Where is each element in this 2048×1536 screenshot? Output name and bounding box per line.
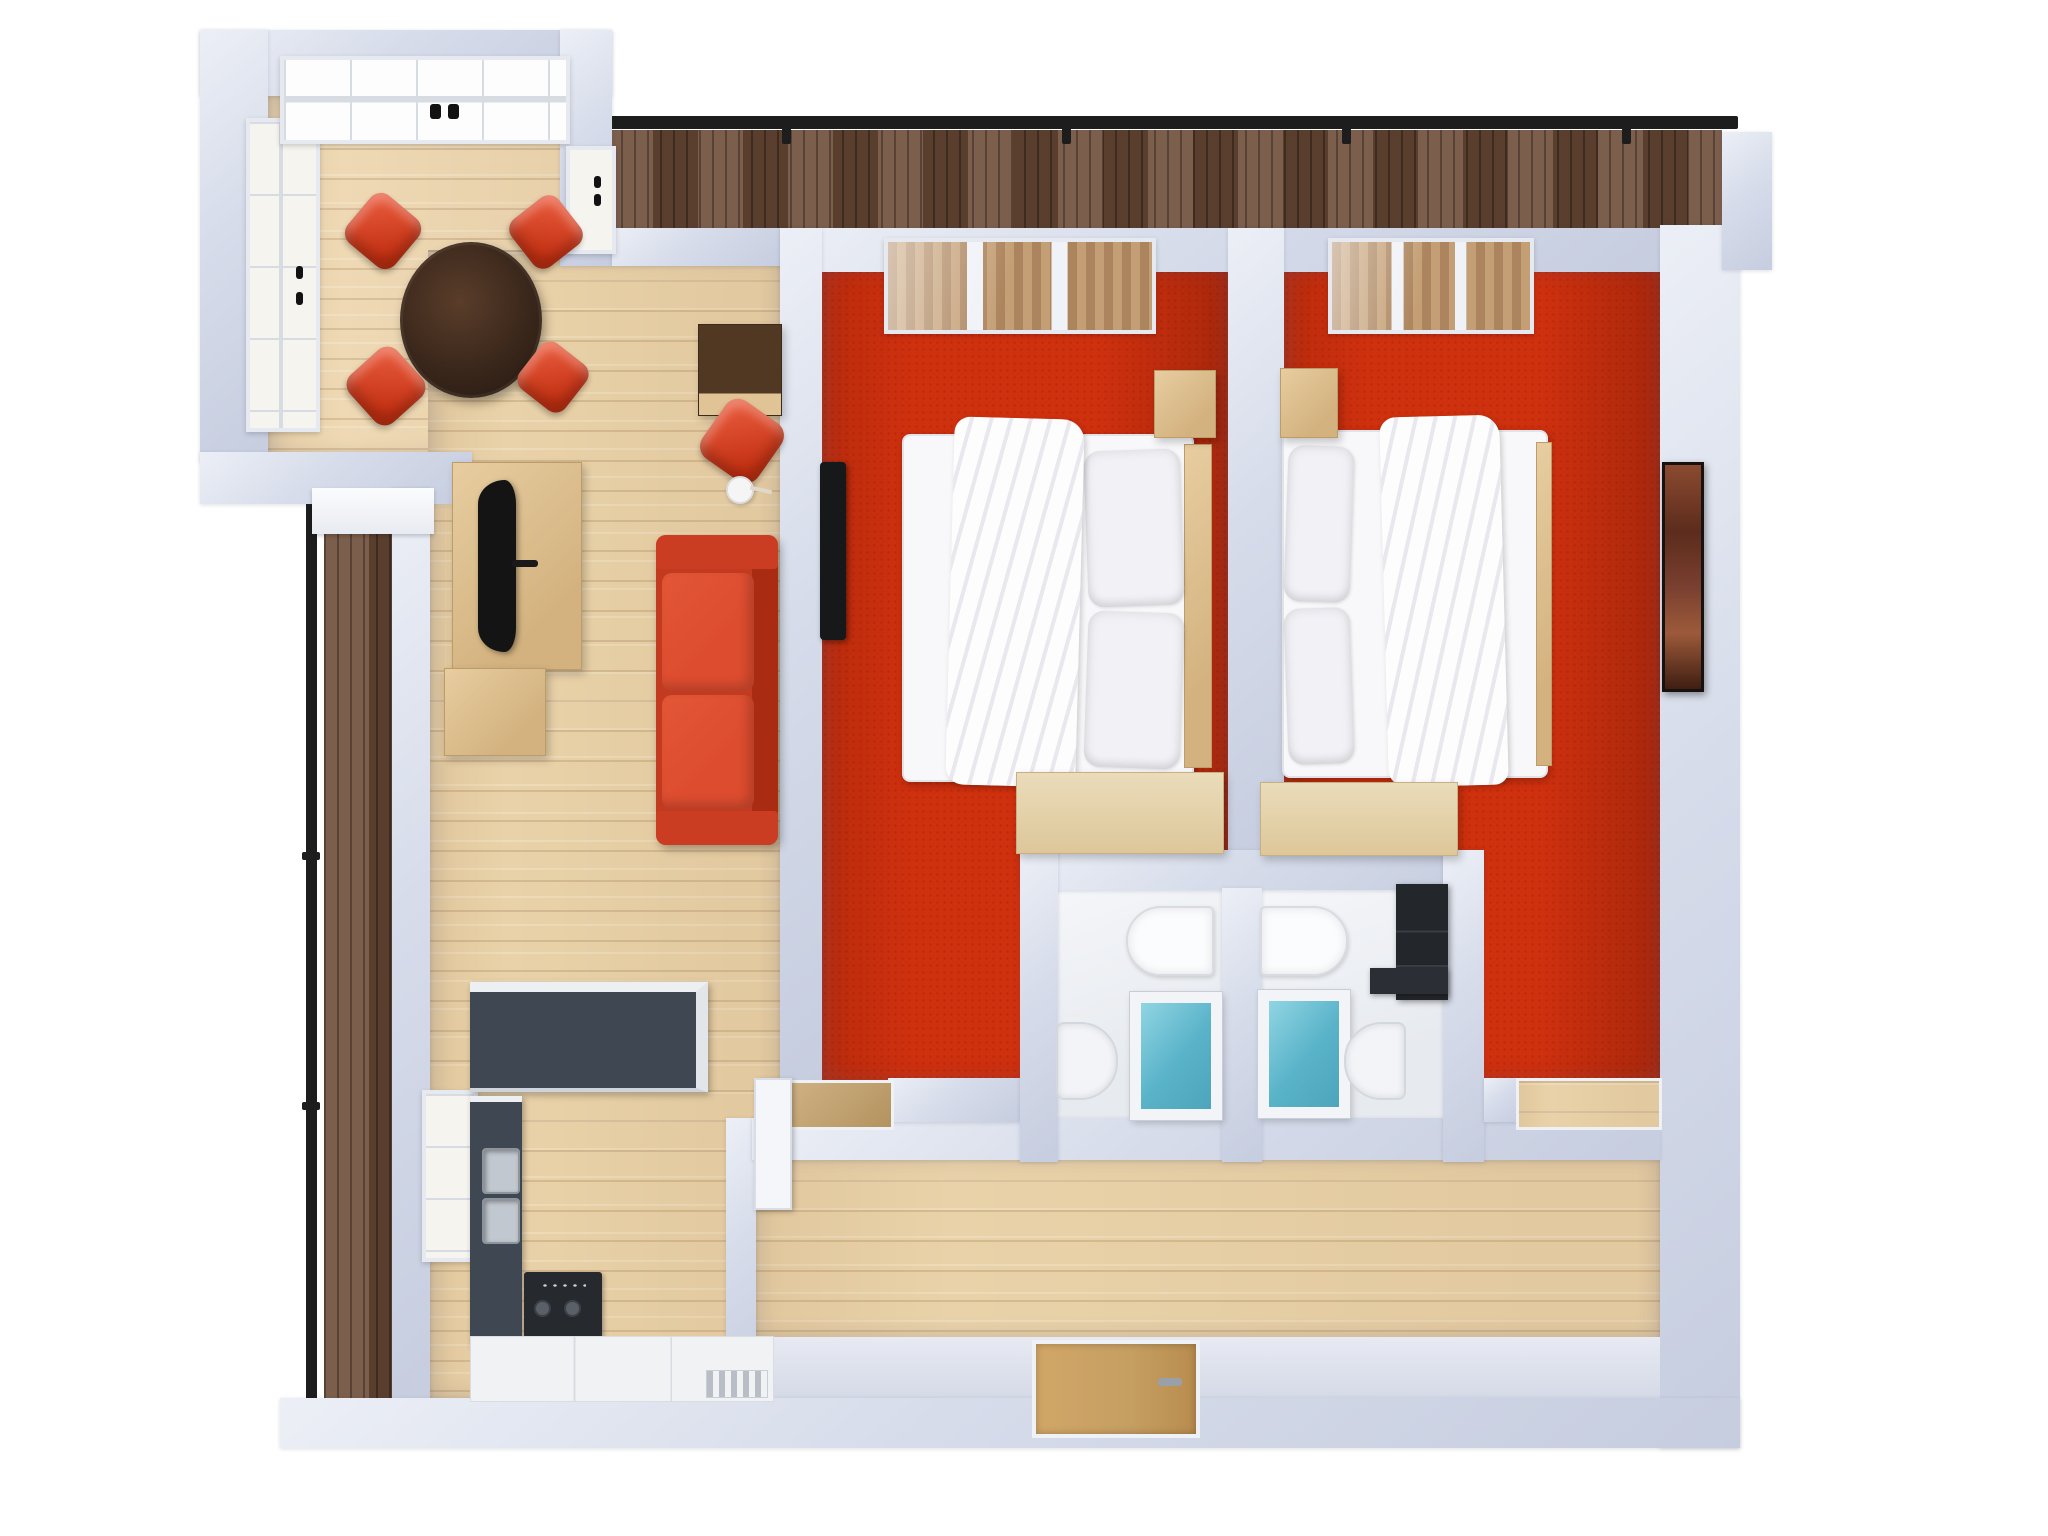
- window-handle-icon: [296, 266, 303, 279]
- bathroom-2-dark-counter: [1370, 968, 1448, 994]
- tv-stand-arm: [512, 560, 538, 567]
- bedroom-1-duvet: [945, 416, 1085, 787]
- bedroom-2-nightstand: [1280, 368, 1338, 438]
- sofa-cushion: [662, 573, 754, 691]
- railing-post: [302, 852, 320, 860]
- bedroom-1-headboard: [1184, 444, 1212, 768]
- wall-bathroom-divider: [1222, 888, 1262, 1162]
- floor-lamp: [726, 476, 754, 504]
- bedroom-2-foot-rail: [1536, 442, 1552, 766]
- wall-bottom: [280, 1398, 1740, 1448]
- wall-bedroom-1-bottom: [888, 1078, 1020, 1122]
- wall-living-top: [612, 228, 782, 266]
- bedroom-2-door-mat: [1516, 1078, 1662, 1130]
- bedroom-2-pillow: [1283, 445, 1354, 603]
- dining-left-window: [246, 118, 320, 432]
- bedroom-2-desk: [1260, 782, 1458, 856]
- door-handle-icon: [594, 194, 601, 206]
- bedroom-1-pillow: [1083, 610, 1184, 769]
- kitchen-cooktop: [524, 1272, 602, 1338]
- bedroom-1-door-mat: [788, 1080, 894, 1130]
- window-handle-icon: [430, 104, 441, 119]
- window-handle-icon: [296, 292, 303, 305]
- bedroom-2-wall-art: [1662, 462, 1704, 692]
- wall-bathroom-left: [1020, 850, 1058, 1162]
- bedroom-1-window: [884, 238, 1156, 334]
- tv-screen: [478, 480, 516, 652]
- entrance-door-handle: [1158, 1378, 1182, 1386]
- railing-post: [1622, 128, 1631, 144]
- sofa-armrest: [656, 811, 778, 845]
- bedroom-1-wall-tv: [820, 462, 846, 640]
- sofa-backrest: [752, 541, 778, 839]
- bedroom-2-duvet: [1379, 414, 1509, 787]
- kitchen-sink: [482, 1148, 520, 1194]
- wall-balcony-left-inner: [392, 488, 430, 1408]
- bathroom-2-bathtub: [1258, 990, 1350, 1118]
- wall-bedroom-1-left: [780, 228, 822, 1080]
- bedroom-1-desk: [1016, 772, 1224, 854]
- hallway-floor: [752, 1150, 1660, 1340]
- bedroom-1-nightstand: [1154, 370, 1216, 438]
- wall-bedroom-2-bottom: [1484, 1078, 1518, 1122]
- bedroom-1-pillow: [1083, 448, 1184, 607]
- floor-plan: [0, 0, 2048, 1536]
- balcony-top-deck: [608, 130, 1722, 232]
- entrance-door: [1032, 1340, 1200, 1438]
- bathroom-2-washbasin: [1260, 906, 1348, 976]
- red-sofa: [656, 535, 778, 845]
- bedroom-2-window: [1328, 238, 1534, 334]
- wall-bathroom-right: [1443, 850, 1484, 1162]
- railing-post: [1062, 128, 1071, 144]
- cooktop-dots: [540, 1282, 586, 1289]
- wall-bedroom-divider: [1228, 228, 1284, 855]
- railing-post: [302, 1102, 320, 1110]
- balcony-left-deck: [324, 520, 394, 1408]
- window-handle-icon: [448, 104, 459, 119]
- cooktop-knob: [534, 1300, 551, 1317]
- bedroom-2-pillow: [1283, 607, 1354, 765]
- sofa-cushion: [662, 695, 754, 809]
- kitchen-island: [470, 982, 708, 1092]
- balcony-top-railing: [600, 116, 1738, 129]
- bathroom-1-bathtub: [1130, 992, 1222, 1120]
- door-handle-icon: [594, 176, 601, 188]
- sofa-armrest: [656, 535, 778, 569]
- railing-post: [1342, 128, 1351, 144]
- dining-top-window: [280, 56, 570, 144]
- kitchen-sink: [482, 1198, 520, 1244]
- wall-right-top-cap: [1722, 132, 1772, 270]
- kitchen-vent-grille: [706, 1370, 768, 1398]
- bedroom-1-door-leaf: [754, 1078, 792, 1210]
- balcony-left-door-sill: [312, 488, 434, 534]
- wall-right: [1660, 225, 1740, 1448]
- cooktop-knob: [564, 1300, 581, 1317]
- media-cabinet: [444, 668, 546, 756]
- bathroom-1-washbasin: [1126, 906, 1214, 976]
- wall-hallway-bottom-face: [752, 1337, 1660, 1398]
- balcony-left-railing: [306, 498, 317, 1408]
- railing-post: [782, 128, 791, 144]
